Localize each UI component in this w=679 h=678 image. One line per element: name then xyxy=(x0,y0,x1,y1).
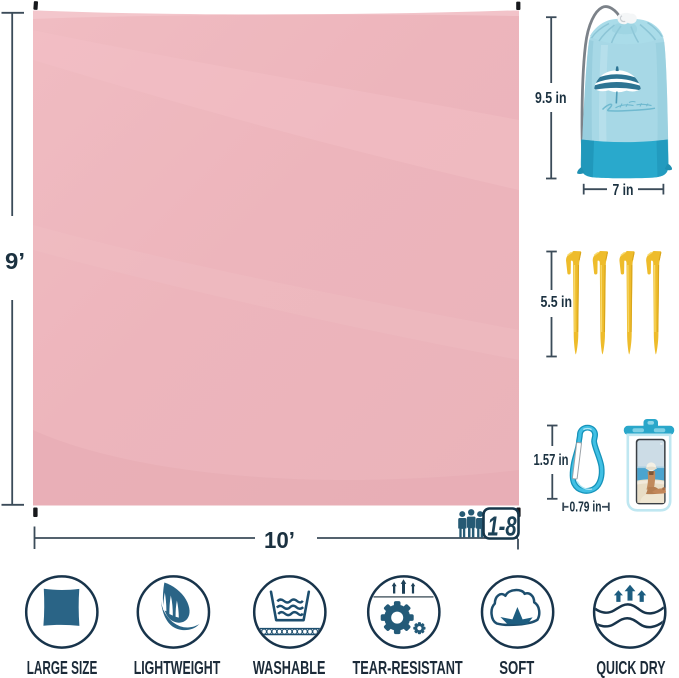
svg-text:SOFT: SOFT xyxy=(499,657,535,678)
svg-text:LARGE SIZE: LARGE SIZE xyxy=(27,657,98,678)
svg-text:LIGHTWEIGHT: LIGHTWEIGHT xyxy=(134,657,221,678)
svg-text:1.57 in: 1.57 in xyxy=(534,452,569,469)
svg-text:9’: 9’ xyxy=(5,248,25,274)
svg-text:7 in: 7 in xyxy=(613,182,634,199)
svg-text:0.79 in: 0.79 in xyxy=(570,499,602,516)
svg-text:QUICK DRY: QUICK DRY xyxy=(596,657,666,678)
svg-text:5.5 in: 5.5 in xyxy=(541,294,573,311)
svg-text:10’: 10’ xyxy=(264,527,295,553)
svg-text:WASHABLE: WASHABLE xyxy=(253,657,326,678)
svg-text:TEAR-RESISTANT: TEAR-RESISTANT xyxy=(353,657,464,678)
svg-text:9.5 in: 9.5 in xyxy=(535,90,567,107)
svg-text:1-8: 1-8 xyxy=(488,511,517,542)
